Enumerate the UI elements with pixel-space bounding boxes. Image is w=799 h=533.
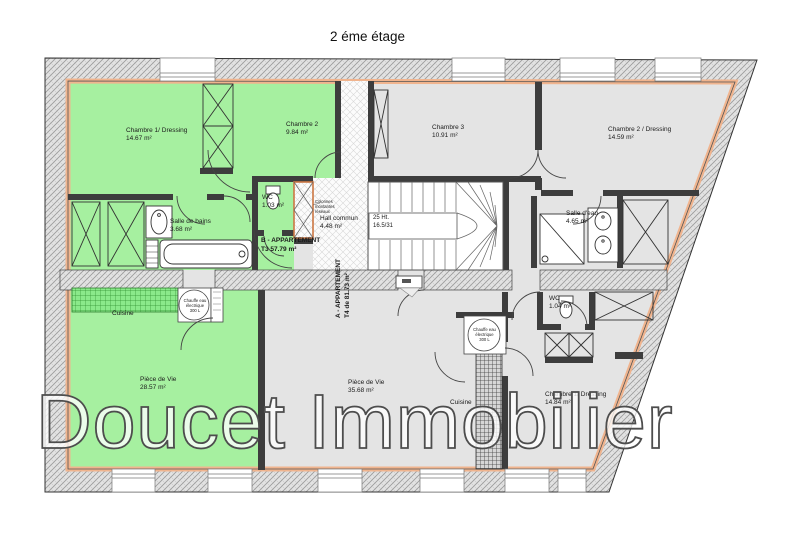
window-icon <box>208 469 252 492</box>
room-label-salle-de-bains: Salle de bains 3.68 m² <box>170 218 211 235</box>
room-label-hall-commun: Hall commun 4.48 m² <box>320 215 358 232</box>
window-icon <box>558 469 586 492</box>
sink-icon <box>146 206 172 238</box>
room-label-salle-eau-a: Salle d'eau 4.65 m² <box>566 210 598 227</box>
apartment-a-label: A - APPARTEMENT T4 de 81.73 m² <box>334 259 353 318</box>
room-label-chambre3-a: Chambre 3 10.91 m² <box>432 124 464 141</box>
hall-upper-strip <box>341 81 368 178</box>
towel-radiator-icon <box>146 240 158 268</box>
window-icon <box>160 58 215 81</box>
window-icon <box>560 58 615 81</box>
window-icon <box>420 469 464 492</box>
corridor-wall-band <box>60 270 667 290</box>
stairs-label: 25 Ht. 16.5/31 <box>373 215 393 231</box>
room-label-chambre2-a: Chambre 2 / Dressing 14.59 m² <box>608 126 671 143</box>
window-icon <box>112 469 155 492</box>
window-icon <box>655 58 701 81</box>
room-label-cuisine-b: Cuisine <box>112 310 134 318</box>
window-icon <box>318 469 362 492</box>
bathtub-icon <box>160 240 252 268</box>
kitchen-counter-b <box>72 288 178 312</box>
water-heater-a-label: Chauffe eau électrique 300 L <box>469 327 500 342</box>
room-label-chambre1-b: Chambre 1/ Dressing 14.67 m² <box>126 127 187 144</box>
window-icon <box>505 469 549 492</box>
apartment-b-label: B - APPARTEMENT T3 57.79 m² <box>261 236 320 255</box>
room-label-chambre2-b: Chambre 2 9.84 m² <box>286 121 318 138</box>
room-label-wc-a: WC 1.04 m² <box>549 295 571 312</box>
water-heater-b-label: Chauffe eau électrique 300 L <box>181 298 209 313</box>
floor-plan-page: 2 éme étage Chambre 1/ Dressing 14.67 m²… <box>0 0 799 533</box>
page-title: 2 éme étage <box>330 29 405 44</box>
window-icon <box>452 58 505 81</box>
agency-watermark: Doucet Immobilier <box>36 378 673 467</box>
room-label-wc-b: WC 1.03 m² <box>262 194 284 211</box>
colonnes-label: Colonnes montantes réseaux <box>315 199 335 214</box>
